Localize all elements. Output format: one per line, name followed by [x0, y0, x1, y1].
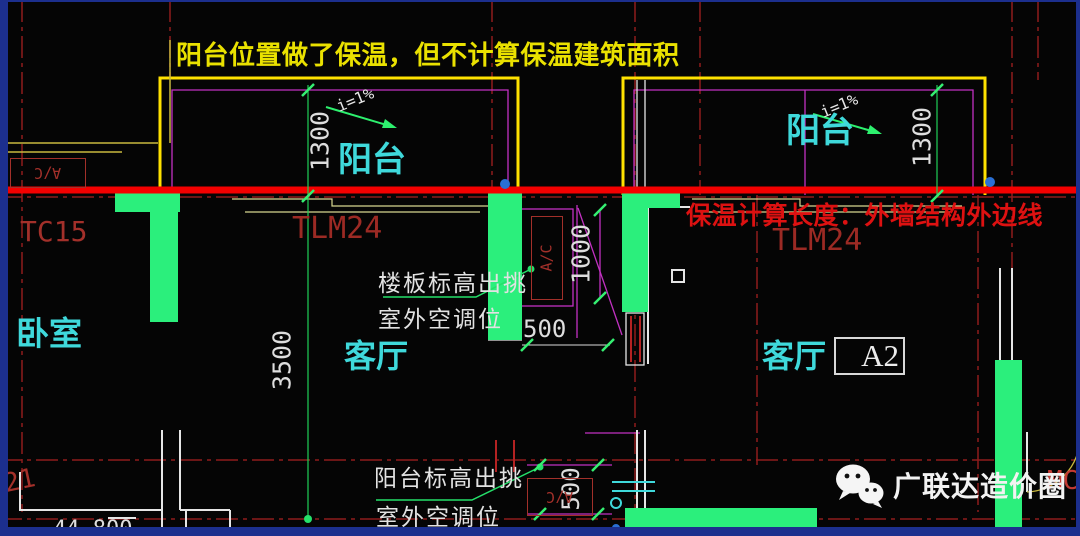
unit-type-box: A2 [834, 337, 905, 375]
frame-top [0, 0, 1080, 2]
watermark-brand: 广联达造价圈 [893, 465, 1067, 505]
room-label-living-left: 客厅 [344, 340, 408, 372]
ac-unit-label: A/C [34, 164, 61, 182]
tag-door-tlm24-left: TLM24 [292, 214, 382, 244]
room-label-bedroom: 卧室 [16, 317, 82, 350]
ac-unit-box-middle: A/C [531, 216, 563, 300]
magenta-lines [172, 90, 973, 514]
ac-unit-label: A/C [546, 488, 573, 506]
grid-dot [304, 515, 312, 523]
dim-ac-recess-depth: 1000 [569, 224, 594, 284]
dim-ac-recess-width: 500 [523, 317, 566, 341]
room-label-living-right: 客厅 [762, 340, 826, 372]
upper-wall-lines [0, 40, 170, 152]
leader-floor-ac-line2: 室外空调位 [378, 308, 503, 331]
room-label-balcony-right: 阳台 [786, 114, 854, 148]
ac-unit-box-top-left: A/C [10, 158, 86, 188]
frame-bottom [0, 527, 1080, 536]
insulation-annotation: 保温计算长度：外墙结构外边线 [686, 204, 1043, 229]
wechat-icon [833, 460, 885, 510]
balcony-outlines [160, 78, 985, 195]
dim-balcony-left: 1300 [308, 111, 333, 171]
watermark: 广联达造价圈 [833, 460, 1067, 510]
leader-floor-ac-line1: 楼板标高出挑 [378, 272, 528, 295]
ac-unit-box-bottom: A/C [527, 478, 593, 516]
tag-door-tlm24-right: TLM24 [772, 226, 862, 256]
ac-unit-label: A/C [538, 244, 556, 271]
dim-balcony-right: 1300 [910, 107, 935, 167]
leader-balcony-ac-line1: 阳台标高出挑 [374, 467, 524, 490]
room-label-balcony-left: 阳台 [338, 143, 406, 177]
top-annotation: 阳台位置做了保温，但不计算保温建筑面积 [176, 42, 680, 68]
leader-balcony-ac-line2: 室外空调位 [376, 506, 501, 529]
frame-left [0, 0, 8, 536]
frame-right [1076, 0, 1080, 536]
cad-floor-plan: 阳台位置做了保温，但不计算保温建筑面积 保温计算长度：外墙结构外边线 阳台 阳台… [0, 0, 1080, 536]
dim-living-depth: 3500 [270, 330, 295, 390]
window-symbol [611, 482, 655, 508]
tag-window-tc15: TC15 [20, 218, 87, 246]
